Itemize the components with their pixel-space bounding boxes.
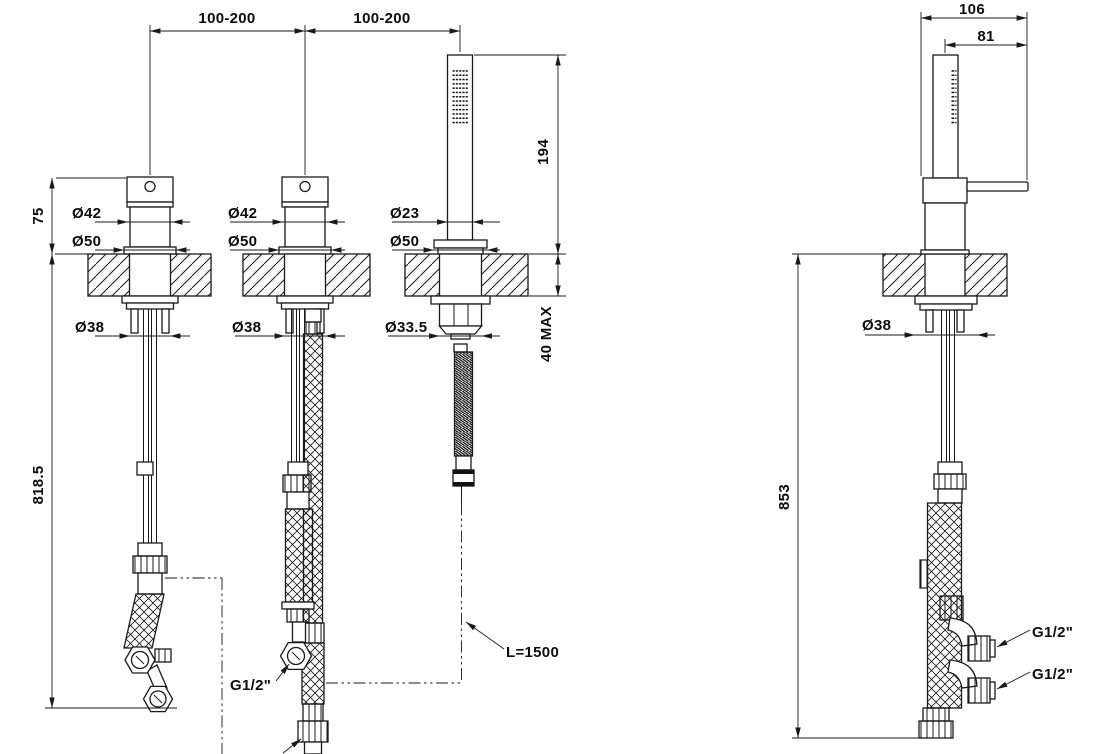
hose-end-nut-1 (125, 647, 155, 673)
dim-side-under-dia: Ø38 (862, 317, 891, 334)
dim-span-right: 100-200 (353, 10, 410, 27)
handle-lever-side (967, 182, 1028, 191)
dim-valve1-top-dia: Ø42 (72, 205, 101, 222)
dim-depth-below-side: 853 (776, 484, 793, 510)
dim-valve1-base-dia: Ø50 (72, 233, 101, 250)
label-inlet-thread-bottom: G1/2" (1032, 666, 1073, 683)
dim-valve2-under-dia: Ø38 (232, 319, 261, 336)
shower-hose-spring (455, 352, 473, 456)
dim-handshower-under-dia: Ø33.5 (385, 319, 427, 336)
dim-handshower-base-dia: Ø50 (390, 233, 419, 250)
bath-mixer-dimension-drawing: 100-200 100-200 75 818.5 194 40 MAX Ø42 … (0, 0, 1100, 754)
spray-face-edge-dots (952, 70, 957, 124)
dim-side-lever-reach: 81 (977, 28, 994, 45)
technical-drawing-page: 100-200 100-200 75 818.5 194 40 MAX Ø42 … (0, 0, 1100, 754)
spray-face-dots (452, 68, 468, 126)
dim-valve2-base-dia: Ø50 (228, 233, 257, 250)
dim-height-above-deck: 75 (30, 207, 47, 224)
dim-span-left: 100-200 (198, 10, 255, 27)
dim-valve2-top-dia: Ø42 (228, 205, 257, 222)
label-hose-length: L=1500 (506, 644, 559, 661)
label-inlet-thread-top: G1/2" (1032, 624, 1073, 641)
dim-valve1-under-dia: Ø38 (75, 319, 104, 336)
outlet-elbow-nut (281, 643, 312, 670)
label-outlet-thread-front: G1/2" (230, 677, 271, 694)
dim-depth-below-front: 818.5 (30, 465, 47, 504)
dim-side-total-width: 106 (959, 1, 985, 18)
dim-handshower-height: 194 (535, 139, 552, 165)
dim-handshower-wand-dia: Ø23 (390, 205, 419, 222)
dim-deck-thickness: 40 MAX (538, 306, 555, 362)
